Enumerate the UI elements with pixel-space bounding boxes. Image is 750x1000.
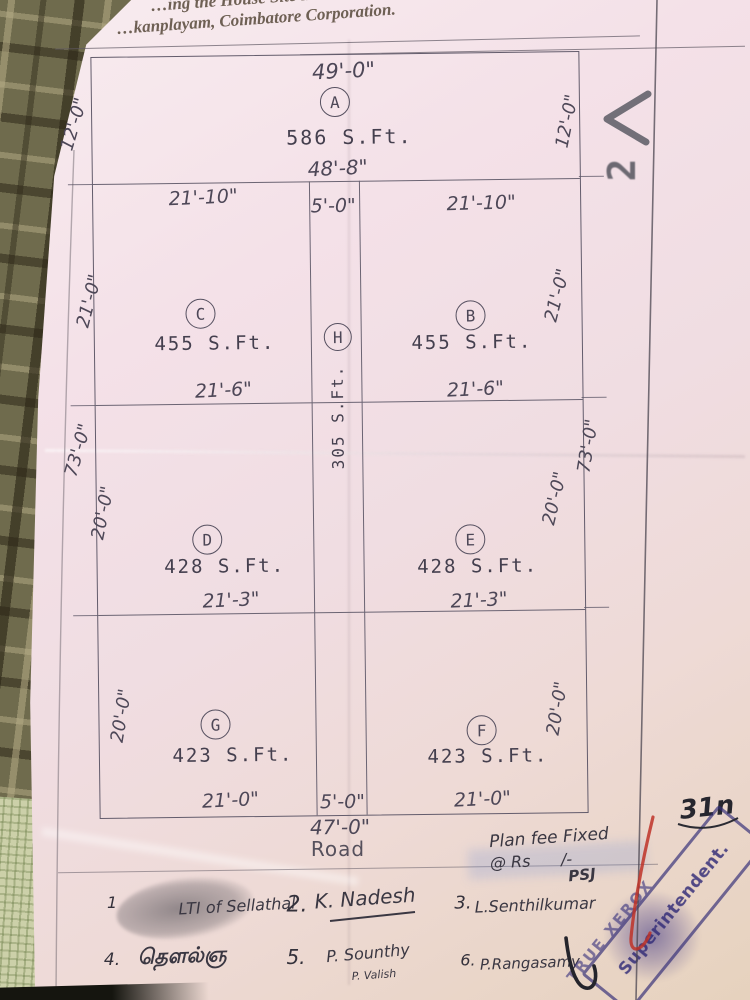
dim-right-12: 12'-0" [552, 93, 583, 150]
road-label: Road [311, 837, 365, 861]
signature-1-number: 1 [107, 893, 117, 912]
dim-top-width: 49'-0" [311, 57, 375, 84]
row-divider-line [98, 609, 585, 616]
plot-b-circle: B [455, 300, 485, 330]
signature-4-text-tamil: தெளல்ஞ [137, 942, 227, 972]
plot-c-circle: C [185, 299, 215, 329]
plot-g-circle: G [200, 709, 230, 739]
dim-left-20-lower: 20'-0" [107, 687, 136, 744]
dimension-tick [68, 184, 93, 186]
dim-bottom-mid: 5'-0" [320, 791, 365, 814]
plot-h-circle: H [324, 323, 352, 351]
plot-c-area: 455 S.Ft. [154, 332, 275, 355]
plot-f-circle: F [466, 715, 496, 745]
plot-plan-diagram: 49'-0" A 586 S.Ft. 48'-8" 21'-10" 5'-0" … [90, 51, 588, 819]
plot-g-letter: G [211, 715, 221, 734]
plot-e-letter: E [465, 530, 475, 549]
plot-a-circle: A [320, 87, 350, 117]
signature-5-number: 5. [286, 945, 305, 969]
plot-a-letter: A [330, 92, 340, 111]
check-number-2-stamp: 2 [600, 159, 644, 182]
passage-right-line [359, 181, 368, 815]
plot-b-area: 455 S.Ft. [411, 331, 532, 354]
dimension-tick [71, 405, 96, 407]
dim-right-20-upper: 20'-0" [538, 470, 571, 527]
signature-3-number: 3. [454, 893, 471, 914]
dim-row2-right: 21'-10" [446, 191, 516, 215]
plot-e-area: 428 S.Ft. [417, 555, 538, 578]
plot-d-letter: D [202, 530, 212, 549]
plot-b-letter: B [466, 306, 476, 325]
plot-f-letter: F [477, 721, 487, 740]
plot-f-area: 423 S.Ft. [427, 744, 548, 767]
dimension-tick [73, 615, 98, 617]
plot-e-circle: E [455, 524, 485, 554]
dim-b-bottom: 21'-6" [446, 377, 504, 402]
dim-row2-mid: 5'-0" [311, 195, 356, 218]
dim-road-frontage: 47'-0" [310, 814, 371, 839]
signature-4-number: 4. [104, 950, 120, 970]
photo-of-plot-plan-document: …ing the House Site in the …agandhi Stre… [0, 0, 750, 1000]
plot-h-area-vertical: 305 S.Ft. [328, 365, 348, 470]
dim-right-20-lower: 20'-0" [543, 680, 572, 737]
plot-d-area: 428 S.Ft. [164, 555, 285, 578]
dim-c-bottom: 21'-6" [194, 378, 252, 403]
initials-psj: PSJ [567, 865, 596, 886]
plot-a-area: 586 S.Ft. [286, 124, 413, 150]
dim-g-bottom: 21'-0" [201, 788, 259, 813]
dim-f-bottom: 21'-0" [453, 787, 511, 812]
dim-right-21: 21'-0" [540, 267, 574, 325]
dim-d-bottom: 21'-3" [202, 588, 260, 613]
plot-c-letter: C [196, 304, 206, 323]
plot-h-letter: H [333, 327, 343, 346]
dim-e-bottom: 21'-3" [450, 588, 508, 613]
plot-d-circle: D [192, 524, 222, 554]
dim-row2-left: 21'-10" [168, 185, 238, 210]
signature-2-number: 2. [287, 893, 308, 918]
plot-g-area: 423 S.Ft. [172, 744, 293, 767]
signature-6-number: 6. [460, 951, 475, 970]
dim-a-bottom-width: 48'-8" [307, 155, 368, 182]
passage-left-line [309, 181, 318, 815]
